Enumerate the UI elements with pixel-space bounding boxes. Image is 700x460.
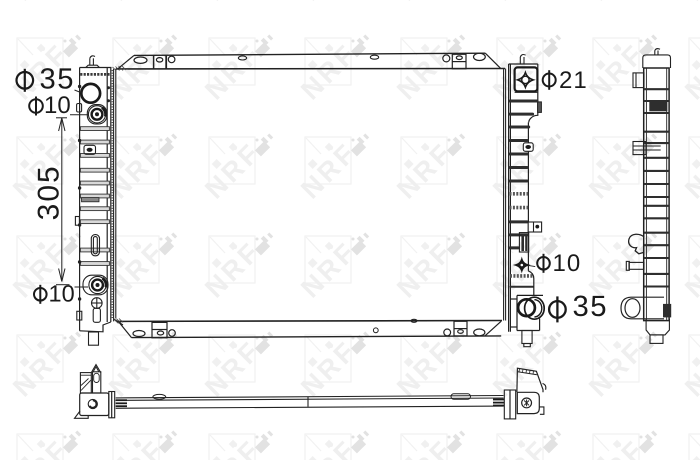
svg-text:10: 10 [44, 92, 71, 119]
svg-text:10: 10 [553, 250, 582, 277]
svg-text:305: 305 [33, 164, 66, 220]
svg-text:10: 10 [49, 280, 75, 306]
svg-text:35: 35 [573, 290, 609, 323]
svg-text:21: 21 [559, 67, 588, 94]
svg-text:35: 35 [40, 64, 75, 96]
